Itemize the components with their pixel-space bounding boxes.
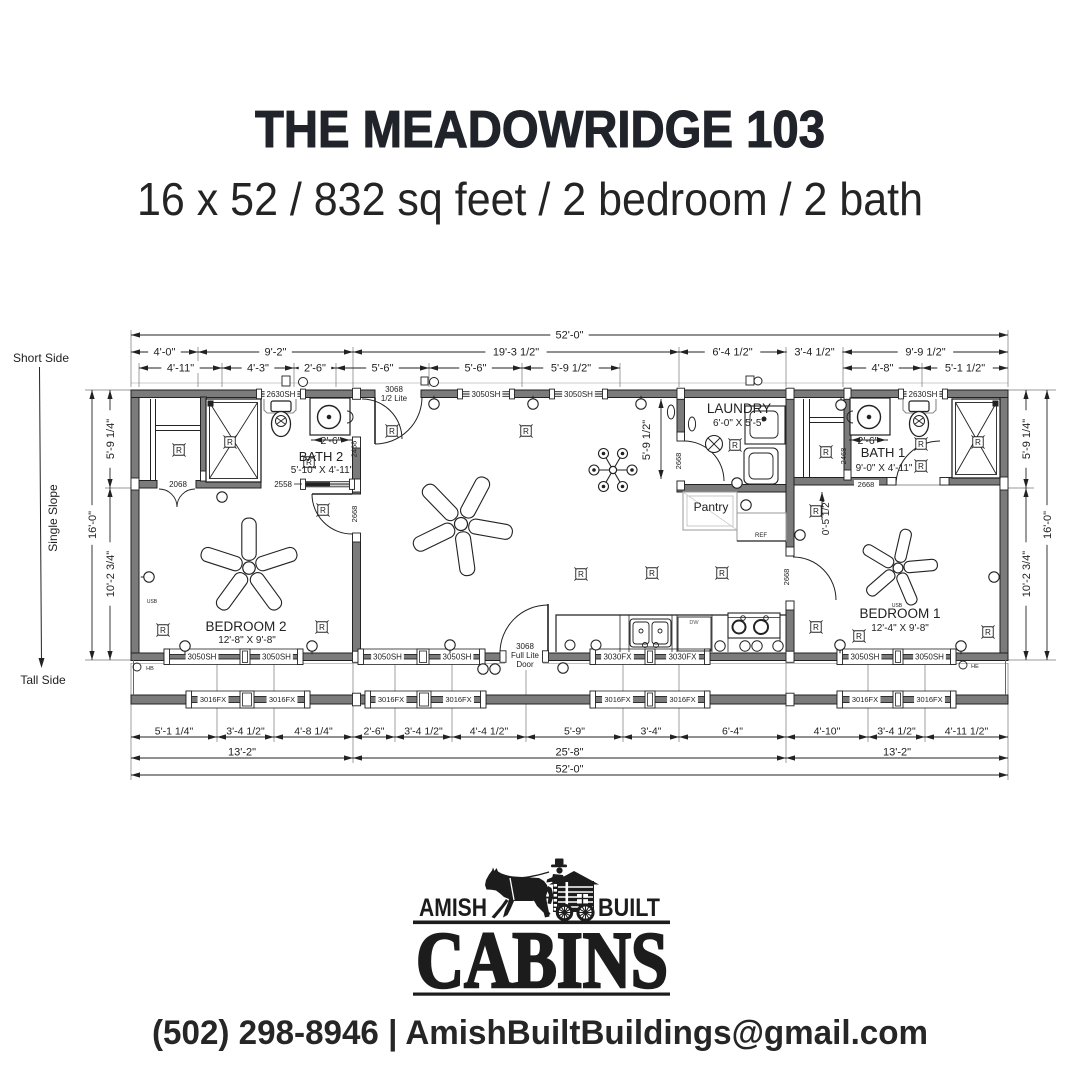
svg-text:3050SH: 3050SH [564,390,593,399]
svg-text:5'-6": 5'-6" [465,363,487,375]
svg-text:R: R [319,623,325,632]
svg-text:3016FX: 3016FX [200,695,226,704]
svg-text:2630SH: 2630SH [267,390,296,399]
svg-text:3050SH: 3050SH [443,653,472,662]
svg-text:0'-5 1/2": 0'-5 1/2" [821,498,832,535]
svg-text:5'-9": 5'-9" [564,726,585,738]
svg-text:6'-0" X 5'-5": 6'-0" X 5'-5" [713,418,766,429]
svg-text:Short Side: Short Side [13,351,69,365]
svg-text:Pantry: Pantry [694,500,729,514]
svg-text:R: R [160,626,166,635]
svg-text:Single Slope: Single Slope [46,484,60,552]
svg-text:2468: 2468 [839,448,848,465]
svg-text:R: R [918,462,924,471]
svg-text:4'-10": 4'-10" [814,726,841,738]
svg-text:R: R [719,569,725,578]
svg-text:16 x 52 / 832 sq feet / 2 bedr: 16 x 52 / 832 sq feet / 2 bedroom / 2 ba… [137,173,923,225]
svg-text:LAUNDRY: LAUNDRY [707,401,771,416]
svg-text:4'-8 1/4": 4'-8 1/4" [294,726,333,738]
svg-text:THE MEADOWRIDGE 103: THE MEADOWRIDGE 103 [255,101,825,159]
svg-text:5'-1 1/4": 5'-1 1/4" [155,726,194,738]
svg-text:52'-0": 52'-0" [555,330,583,342]
svg-text:16'-0": 16'-0" [1042,511,1054,539]
svg-text:19'-3 1/2": 19'-3 1/2" [493,347,539,359]
svg-text:DW: DW [689,620,699,626]
svg-text:2668: 2668 [350,506,359,523]
svg-text:5'-9 1/2": 5'-9 1/2" [641,420,653,460]
svg-text:Full Lite: Full Lite [511,651,540,660]
svg-text:Door: Door [516,660,534,669]
svg-text:REF: REF [755,533,767,539]
svg-text:9'-2": 9'-2" [265,347,287,359]
svg-text:3'-4 1/2": 3'-4 1/2" [226,726,265,738]
svg-text:2068: 2068 [169,480,187,489]
svg-text:2'-6": 2'-6" [364,726,385,738]
svg-text:3030FX: 3030FX [668,653,697,662]
svg-text:3016FX: 3016FX [916,695,942,704]
svg-text:R: R [578,570,584,579]
svg-text:6'-4 1/2": 6'-4 1/2" [712,347,752,359]
svg-text:4'-0": 4'-0" [154,347,176,359]
svg-text:2558: 2558 [274,480,292,489]
svg-text:10'-2 3/4": 10'-2 3/4" [1021,551,1033,597]
svg-text:HE: HE [971,664,979,670]
svg-text:9'-9 1/2": 9'-9 1/2" [905,347,945,359]
svg-text:(502) 298-8946 | AmishBuiltBui: (502) 298-8946 | AmishBuiltBuildings@gma… [152,1014,928,1052]
svg-text:2630SH: 2630SH [909,390,938,399]
svg-text:CABINS: CABINS [416,917,668,1005]
svg-text:R: R [389,427,395,436]
svg-text:R: R [732,441,738,450]
svg-text:R: R [985,628,991,637]
svg-text:3050SH: 3050SH [188,653,217,662]
svg-text:3016FX: 3016FX [445,695,471,704]
svg-text:4'-4 1/2": 4'-4 1/2" [470,726,509,738]
svg-text:13'-2": 13'-2" [228,747,256,759]
svg-text:2'-6": 2'-6" [304,363,326,375]
svg-text:2468: 2468 [350,441,359,458]
svg-text:R: R [227,438,233,447]
svg-text:3016FX: 3016FX [378,695,404,704]
svg-text:9'-0" X 4'-11": 9'-0" X 4'-11" [856,463,913,474]
svg-text:5'-1 1/2": 5'-1 1/2" [945,363,985,375]
svg-text:R: R [813,507,819,516]
svg-text:3'-4 1/2": 3'-4 1/2" [877,726,916,738]
svg-text:3030FX: 3030FX [603,653,632,662]
svg-text:6'-4": 6'-4" [722,726,743,738]
svg-text:3016FX: 3016FX [852,695,878,704]
svg-text:3050SH: 3050SH [373,653,402,662]
svg-text:2668: 2668 [674,453,683,470]
svg-text:3'-4": 3'-4" [641,726,662,738]
svg-text:BEDROOM 1: BEDROOM 1 [859,606,940,621]
svg-text:3'-4 1/2": 3'-4 1/2" [794,347,834,359]
svg-text:5'-9 1/2": 5'-9 1/2" [551,363,591,375]
svg-text:10'-2 3/4": 10'-2 3/4" [105,551,117,597]
svg-text:4'-8": 4'-8" [872,363,894,375]
svg-text:2668: 2668 [858,480,875,489]
svg-text:52'-0": 52'-0" [555,764,583,776]
svg-text:16'-0": 16'-0" [87,511,99,539]
svg-text:3050SH: 3050SH [262,653,291,662]
svg-text:5'-9 1/4": 5'-9 1/4" [105,419,117,459]
svg-text:3016FX: 3016FX [669,695,695,704]
svg-text:BATH 1: BATH 1 [861,445,906,460]
svg-text:R: R [523,427,529,436]
svg-text:2668: 2668 [782,569,791,586]
svg-text:4'-3": 4'-3" [247,363,269,375]
svg-text:R: R [975,438,981,447]
svg-text:25'-8": 25'-8" [555,747,583,759]
svg-text:5'-10" X 4'-11": 5'-10" X 4'-11" [291,465,354,476]
svg-text:2'-6": 2'-6" [321,435,342,447]
svg-text:12'-4" X 9'-8": 12'-4" X 9'-8" [871,623,929,634]
svg-text:3'-4 1/2": 3'-4 1/2" [404,726,443,738]
svg-text:3068: 3068 [516,642,534,651]
svg-text:4'-11": 4'-11" [167,363,194,375]
svg-text:4'-11 1/2": 4'-11 1/2" [945,726,989,738]
svg-text:3016FX: 3016FX [604,695,630,704]
svg-text:R: R [856,632,862,641]
svg-text:12'-8" X 9'-8": 12'-8" X 9'-8" [218,635,276,646]
svg-text:3050SH: 3050SH [472,390,501,399]
svg-text:3050SH: 3050SH [915,653,944,662]
svg-text:13'-2": 13'-2" [883,747,911,759]
svg-text:USB: USB [147,599,158,605]
svg-text:HB: HB [146,666,154,672]
svg-text:BEDROOM 2: BEDROOM 2 [205,619,286,634]
svg-text:BATH 2: BATH 2 [299,449,344,464]
svg-text:R: R [649,569,655,578]
svg-text:R: R [176,446,182,455]
svg-text:1/2 Lite: 1/2 Lite [381,394,408,403]
svg-text:R: R [823,448,829,457]
svg-text:5'-6": 5'-6" [372,363,394,375]
svg-text:3016FX: 3016FX [269,695,295,704]
svg-text:R: R [320,506,326,515]
svg-text:3050SH: 3050SH [851,653,880,662]
svg-text:R: R [813,623,819,632]
svg-text:3068: 3068 [385,385,403,394]
svg-text:5'-9 1/4": 5'-9 1/4" [1021,419,1033,459]
svg-text:Tall Side: Tall Side [20,673,66,687]
svg-text:R: R [918,440,924,449]
